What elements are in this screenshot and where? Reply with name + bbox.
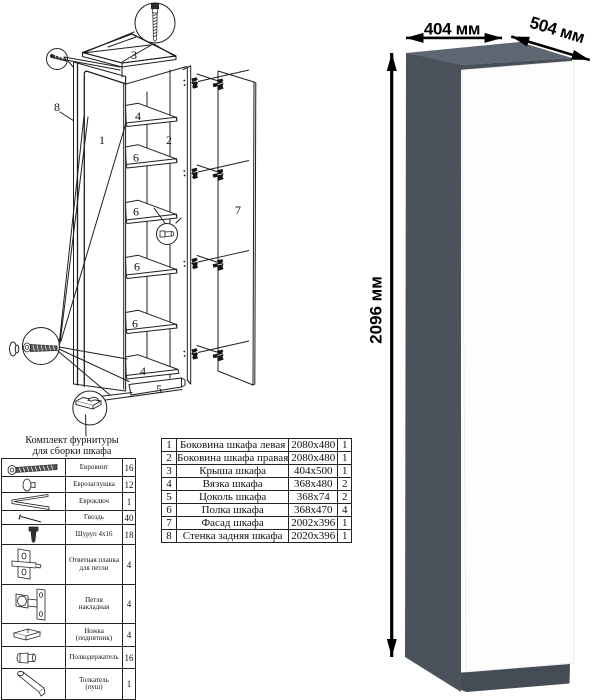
svg-text:1: 1 bbox=[99, 133, 105, 147]
svg-text:6: 6 bbox=[133, 205, 139, 219]
svg-text:6: 6 bbox=[133, 151, 139, 165]
svg-text:6: 6 bbox=[132, 317, 138, 331]
svg-text:4: 4 bbox=[135, 109, 141, 123]
svg-text:3: 3 bbox=[131, 48, 137, 62]
svg-text:504 мм: 504 мм bbox=[528, 13, 587, 47]
svg-text:7: 7 bbox=[235, 203, 241, 217]
svg-text:4: 4 bbox=[140, 364, 146, 378]
svg-text:2: 2 bbox=[166, 133, 172, 147]
svg-text:404 мм: 404 мм bbox=[424, 19, 480, 38]
svg-text:5: 5 bbox=[156, 382, 162, 396]
svg-text:8: 8 bbox=[54, 100, 60, 114]
svg-text:2096 мм: 2096 мм bbox=[367, 276, 386, 344]
svg-text:6: 6 bbox=[134, 260, 140, 274]
